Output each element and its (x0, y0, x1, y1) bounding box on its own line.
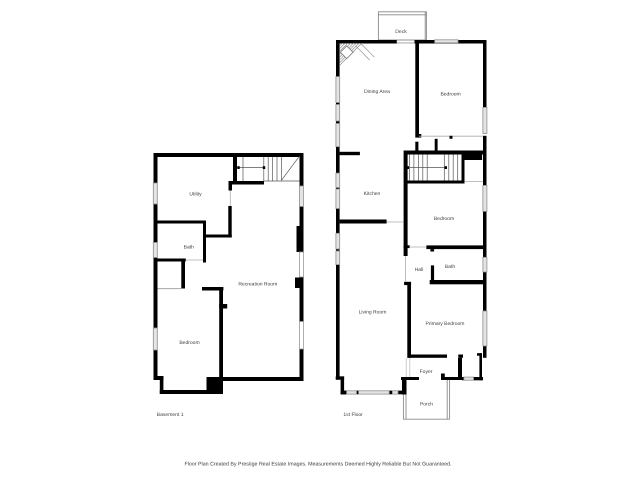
svg-text:Bath: Bath (184, 245, 195, 251)
svg-text:Porch: Porch (420, 402, 433, 408)
svg-text:Bedroom: Bedroom (179, 340, 199, 346)
svg-text:Bedroom: Bedroom (434, 216, 454, 222)
svg-text:Hall: Hall (415, 267, 424, 273)
svg-text:Deck: Deck (395, 29, 407, 35)
svg-text:Kitchen: Kitchen (364, 191, 381, 197)
svg-text:Living Room: Living Room (359, 309, 387, 315)
svg-text:Bedroom: Bedroom (440, 92, 460, 98)
svg-text:1st Floor: 1st Floor (343, 412, 363, 418)
svg-text:Bath: Bath (445, 264, 456, 270)
svg-text:Primary Bedroom: Primary Bedroom (426, 321, 465, 327)
svg-text:Recreation Room: Recreation Room (238, 282, 277, 288)
svg-text:Dining Area: Dining Area (364, 89, 390, 95)
svg-text:Utility: Utility (189, 192, 202, 198)
svg-text:Basement 1: Basement 1 (157, 412, 184, 418)
svg-text:Foyer: Foyer (420, 369, 433, 375)
svg-text:Floor Plan Created By Prestige: Floor Plan Created By Prestige Real Esta… (184, 461, 451, 467)
